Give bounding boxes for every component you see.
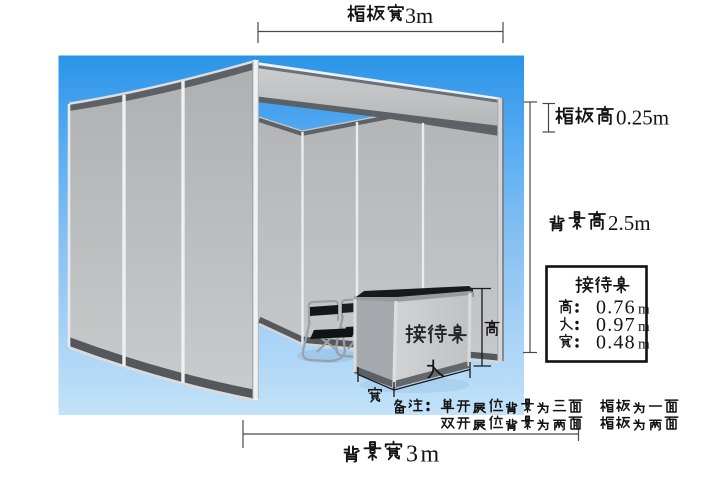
svg-text:0.48: 0.48 bbox=[596, 332, 636, 354]
svg-text:3m: 3m bbox=[405, 3, 433, 28]
svg-text:0.25m: 0.25m bbox=[616, 106, 669, 130]
svg-text:2.5m: 2.5m bbox=[608, 211, 651, 235]
svg-text:m: m bbox=[638, 337, 650, 353]
svg-text:3m: 3m bbox=[406, 442, 442, 468]
svg-text:m: m bbox=[638, 302, 650, 318]
svg-text:m: m bbox=[638, 319, 650, 335]
